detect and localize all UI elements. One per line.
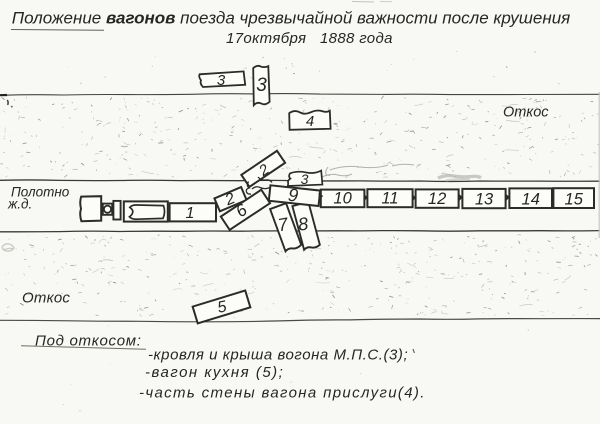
svg-text:13: 13 <box>475 191 494 209</box>
svg-text:4: 4 <box>306 113 314 130</box>
svg-text:Положение вагонов поезда чрезв: Положение вагонов поезда чрезвычайной ва… <box>12 9 571 28</box>
svg-text:Откос: Откос <box>22 290 70 307</box>
svg-text:3: 3 <box>301 171 309 187</box>
svg-text:1: 1 <box>186 205 195 222</box>
svg-text:-часть стены вагона прислуги(4: -часть стены вагона прислуги(4). <box>139 385 426 402</box>
svg-text:15: 15 <box>565 190 584 208</box>
svg-text:-кровля и крыша вогона М.П.С.(: -кровля и крыша вогона М.П.С.(3); <box>148 347 408 364</box>
svg-text:Откос: Откос <box>503 105 549 121</box>
svg-text:3: 3 <box>256 75 267 96</box>
svg-text:-вагон кухня (5);: -вагон кухня (5); <box>145 364 284 381</box>
svg-text:ж.д.: ж.д. <box>7 197 32 212</box>
svg-text:9: 9 <box>287 185 299 206</box>
svg-text:17октября 1888 года: 17октября 1888 года <box>226 30 393 47</box>
svg-text:11: 11 <box>381 190 398 208</box>
svg-text:3: 3 <box>217 72 226 89</box>
svg-text:14: 14 <box>522 190 540 208</box>
svg-text:12: 12 <box>428 190 446 208</box>
svg-text:10: 10 <box>333 190 352 208</box>
